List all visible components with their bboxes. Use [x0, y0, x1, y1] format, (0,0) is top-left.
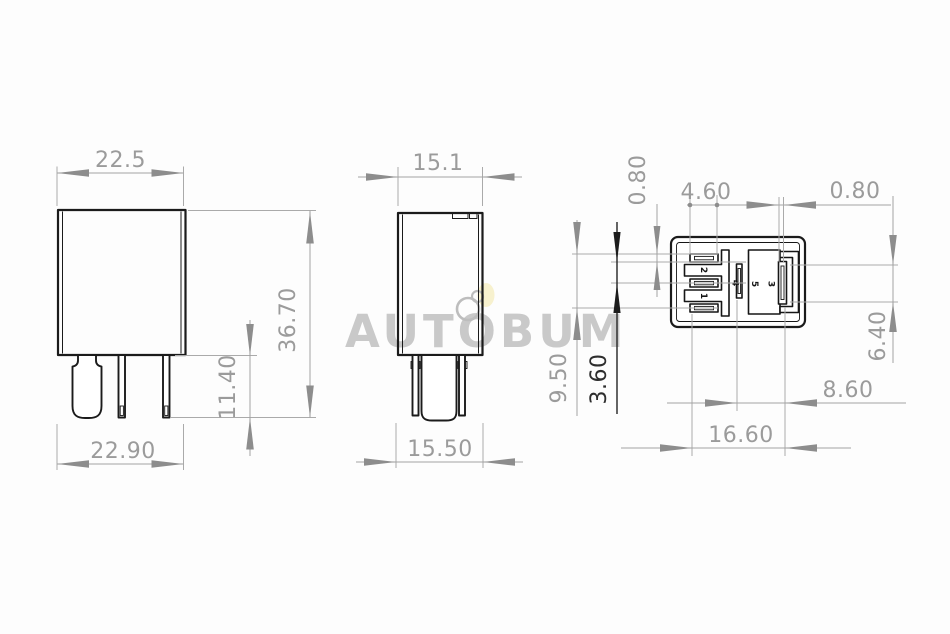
watermark: AUTOBUM — [345, 283, 628, 358]
dim-front-pin-length: 11.40 — [216, 354, 241, 419]
arrowhead — [573, 222, 581, 254]
pin-label-5: 5 — [749, 281, 759, 287]
pin-label-2: 2 — [698, 267, 708, 273]
front-view: 22.5 36.70 11.40 22.90 — [57, 148, 316, 470]
thin-pin-side — [459, 355, 465, 416]
arrowhead — [306, 386, 314, 418]
dim-total-width: 16.60 — [708, 423, 773, 448]
dim-blade-slot-width: 0.80 — [830, 179, 881, 204]
dim-slot-length: 4.60 — [681, 180, 732, 205]
arrowhead — [152, 460, 184, 468]
arrowhead — [246, 324, 254, 356]
relay-body-front — [58, 210, 186, 355]
dim-side-depth-bottom: 15.50 — [407, 437, 472, 462]
arrowhead — [152, 169, 184, 177]
dim-blade-slot-length: 6.40 — [866, 311, 891, 362]
dim-blade-offset: 8.60 — [823, 378, 874, 403]
watermark-glow-shape — [478, 283, 495, 307]
relay-dimension-drawing: AUTOBUM 22.5 36.70 — [0, 0, 950, 634]
arrowhead — [785, 399, 817, 407]
arrowhead — [364, 458, 396, 466]
arrowhead — [366, 173, 398, 181]
pin-label-3: 3 — [766, 281, 776, 287]
arrowhead — [660, 444, 692, 452]
pin-label-1: 1 — [698, 293, 708, 299]
arrowhead — [785, 444, 817, 452]
arrowhead — [613, 232, 620, 262]
arrowhead — [613, 283, 620, 313]
arrowhead — [784, 201, 816, 209]
arrowhead — [306, 212, 314, 244]
thin-pin-side — [413, 355, 419, 416]
thin-pin-front — [163, 355, 170, 418]
dim-front-height: 36.70 — [276, 287, 301, 352]
arrowhead — [483, 173, 515, 181]
arrowhead — [705, 399, 737, 407]
arrowhead — [654, 262, 661, 290]
wide-pin-front — [73, 355, 102, 418]
dim-pin-row-pitch: 3.60 — [587, 354, 612, 405]
thin-pin-front — [119, 355, 126, 418]
dim-pin-row-span: 9.50 — [547, 353, 572, 404]
arrowhead — [57, 460, 89, 468]
dim-front-width-bottom: 22.90 — [90, 439, 155, 464]
arrowhead — [654, 226, 661, 254]
dim-slot-height: 0.80 — [626, 155, 651, 206]
dim-side-depth-top: 15.1 — [413, 151, 464, 176]
arrowhead — [57, 169, 89, 177]
relay-dimension-drawing-page: AUTOBUM 22.5 36.70 — [0, 0, 950, 634]
arrowhead — [889, 235, 897, 265]
arrowhead — [246, 418, 254, 450]
dim-front-width-top: 22.5 — [95, 148, 146, 173]
wide-blade-slot — [779, 262, 787, 305]
arrowhead — [747, 201, 779, 209]
watermark-text: AUTOBUM — [345, 305, 628, 358]
arrowhead — [483, 458, 515, 466]
wide-pin-side — [422, 355, 457, 421]
